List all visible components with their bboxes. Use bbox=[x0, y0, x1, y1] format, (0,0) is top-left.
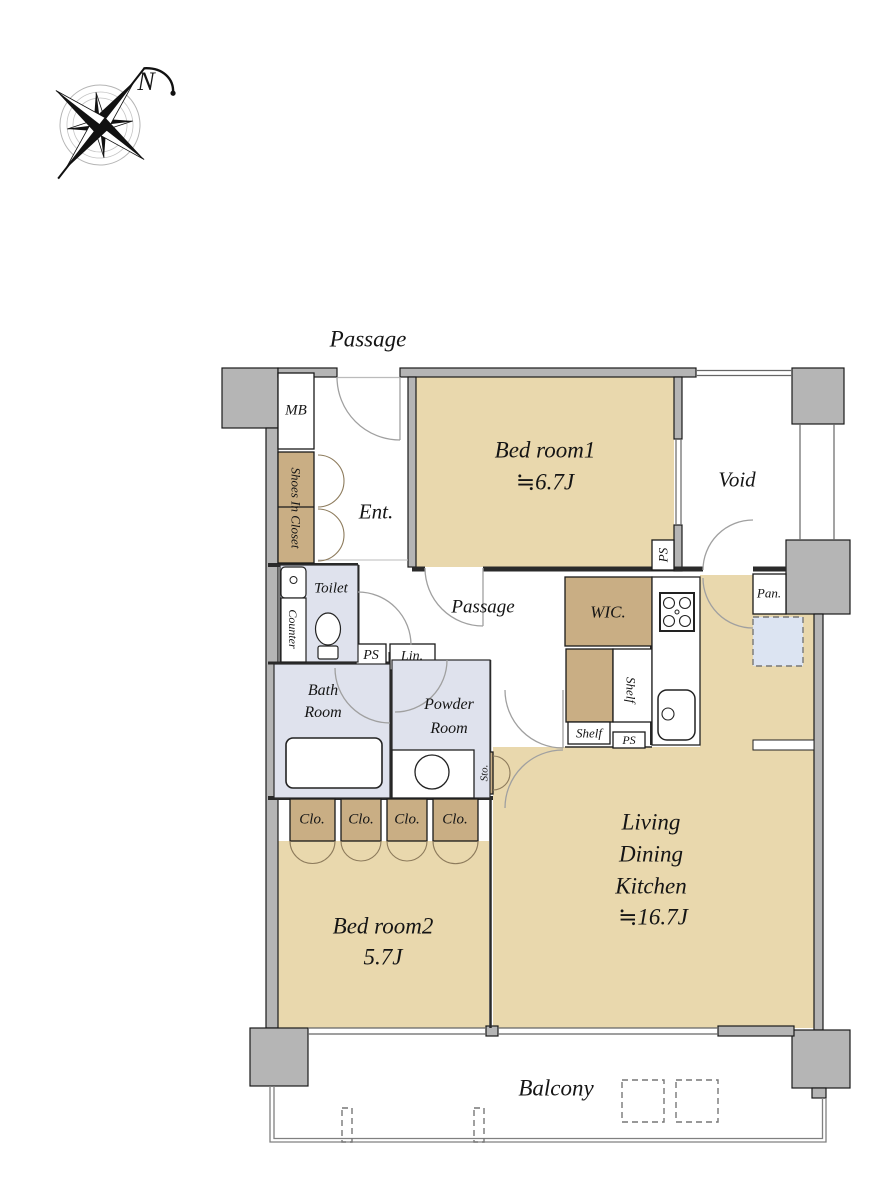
ldk-dining-label: Dining bbox=[619, 843, 683, 866]
passage-top-label: Passage bbox=[330, 328, 407, 351]
void-label: Void bbox=[718, 470, 755, 491]
washbasin-bowl bbox=[415, 755, 449, 789]
closet-label-2: Clo. bbox=[348, 813, 373, 828]
bedroom1-left-wall bbox=[408, 377, 416, 567]
counter-label: Counter bbox=[287, 609, 299, 648]
bedroom2-name-label: Bed room2 bbox=[333, 915, 434, 938]
balcony-label: Balcony bbox=[518, 1077, 593, 1100]
shoes-closet-label: Shoes In Closet bbox=[290, 468, 303, 549]
balcony-pillar-notch bbox=[812, 1088, 826, 1098]
bedroom1-right-wall-top bbox=[674, 377, 682, 439]
toilet-bowl bbox=[316, 613, 341, 645]
compass-north-label: N bbox=[137, 69, 154, 95]
powder-room-label-1: Powder bbox=[424, 697, 474, 713]
bedroom2-size-label: 5.7J bbox=[364, 946, 403, 969]
passage-inner-label: Passage bbox=[451, 598, 514, 617]
entrance-closet-bifold bbox=[318, 455, 344, 561]
bathtub bbox=[286, 738, 382, 788]
pillar-bottom-right bbox=[792, 1030, 850, 1088]
bath-room-label-1: Bath bbox=[308, 683, 338, 699]
linen-label: Lin. bbox=[401, 650, 423, 664]
kitchen-faucet bbox=[662, 708, 674, 720]
pillar-top-right bbox=[792, 368, 844, 424]
pillar-right-mid bbox=[786, 540, 850, 614]
void-door-arc bbox=[703, 520, 753, 570]
ps-label-shelf: PS bbox=[622, 734, 635, 746]
toilet-door-arc bbox=[358, 592, 411, 645]
toilet-tank bbox=[318, 646, 338, 659]
ldk-size-label: ≒16.7J bbox=[618, 906, 688, 929]
floor-plan: N Passage MB Bed room1 ≒6.7J Void Ent. S… bbox=[0, 0, 888, 1200]
bottom-wall-mid-chunk bbox=[486, 1026, 498, 1036]
closet-label-4: Clo. bbox=[442, 813, 467, 828]
shelf-brown-box bbox=[566, 649, 613, 722]
kitchen-counter-bar bbox=[753, 740, 814, 750]
balcony-partition-1 bbox=[342, 1108, 352, 1142]
shelf-label-horizontal: Shelf bbox=[576, 727, 602, 740]
balcony-unit-1 bbox=[622, 1080, 664, 1122]
bottom-wall-chunk bbox=[718, 1026, 794, 1036]
toilet-label: Toilet bbox=[314, 582, 348, 597]
pillar-bottom-left bbox=[250, 1028, 308, 1086]
ldk-kitchen-label: Kitchen bbox=[615, 875, 687, 898]
bedroom1-name-label: Bed room1 bbox=[495, 439, 596, 462]
shelf-label-vertical: Shelf bbox=[625, 677, 638, 703]
powder-room-label-2: Room bbox=[430, 721, 467, 737]
meter-box-label: MB bbox=[285, 404, 307, 419]
ps-label-bath: PS bbox=[363, 649, 379, 663]
bedroom1-right-wall-bottom bbox=[674, 525, 682, 571]
refrigerator-space bbox=[753, 617, 803, 666]
balcony-partition-2 bbox=[474, 1108, 484, 1142]
balcony-unit-2 bbox=[676, 1080, 718, 1122]
top-wall-b bbox=[400, 368, 696, 377]
bedroom1-size-label: ≒6.7J bbox=[516, 471, 574, 494]
bath-room-label-2: Room bbox=[304, 705, 341, 721]
ps-label-bedroom1: PS bbox=[657, 548, 670, 562]
ldk-right-wall bbox=[814, 614, 823, 1030]
entrance-door-arc bbox=[337, 377, 400, 440]
ldk-living-label: Living bbox=[622, 811, 681, 834]
closet-label-1: Clo. bbox=[299, 813, 324, 828]
compass-rose-icon bbox=[14, 27, 193, 213]
entrance-label: Ent. bbox=[359, 502, 393, 523]
wic-label: WIC. bbox=[590, 604, 625, 621]
pantry-label: Pan. bbox=[757, 587, 781, 600]
storage-label: Sto. bbox=[480, 765, 491, 782]
floor-plan-drawing bbox=[0, 0, 888, 1200]
closet-label-3: Clo. bbox=[394, 813, 419, 828]
pillar-top-left bbox=[222, 368, 278, 428]
